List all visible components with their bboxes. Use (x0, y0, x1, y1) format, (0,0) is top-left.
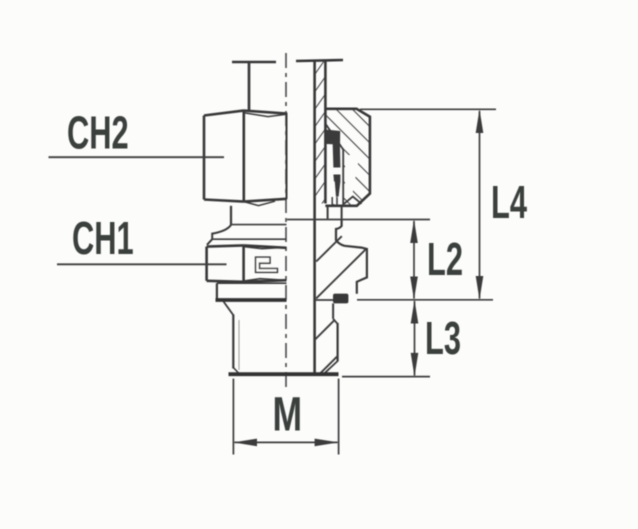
svg-text:L4: L4 (491, 178, 527, 229)
svg-text:L3: L3 (425, 314, 461, 365)
svg-text:CH2: CH2 (67, 108, 129, 159)
svg-text:CH1: CH1 (72, 214, 134, 265)
svg-text:M: M (273, 387, 303, 440)
svg-text:L2: L2 (427, 235, 463, 286)
